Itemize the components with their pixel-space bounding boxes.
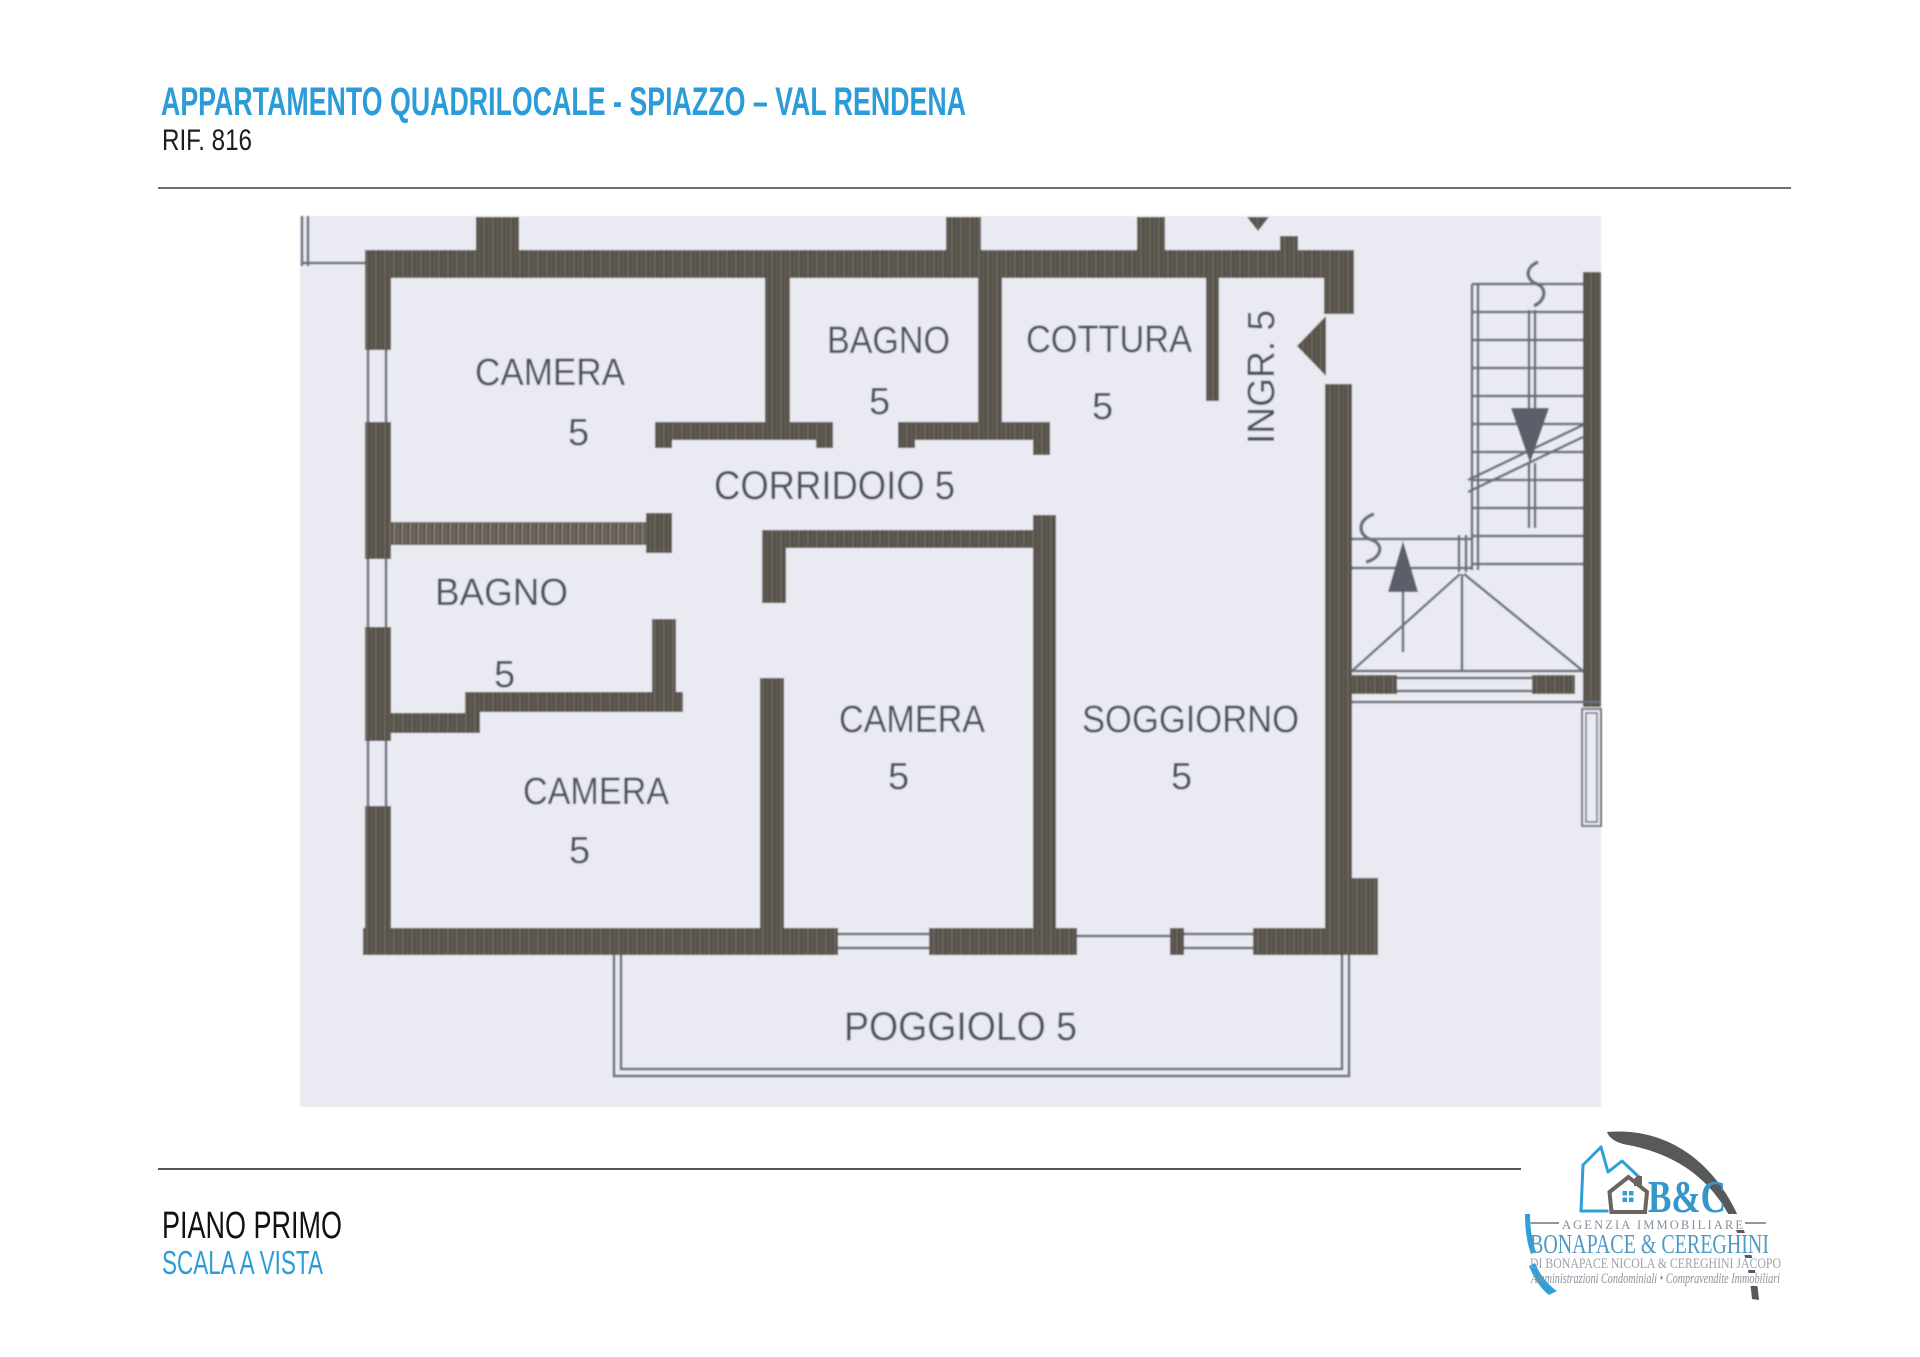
svg-text:5: 5 (888, 756, 909, 798)
svg-text:5: 5 (569, 830, 590, 872)
svg-text:5: 5 (568, 412, 589, 454)
svg-text:BAGNO: BAGNO (435, 572, 568, 614)
svg-text:BONAPACE & CEREGHINI: BONAPACE & CEREGHINI (1530, 1229, 1769, 1259)
svg-text:SOGGIORNO: SOGGIORNO (1082, 699, 1299, 741)
svg-text:POGGIOLO 5: POGGIOLO 5 (844, 1005, 1077, 1049)
svg-text:COTTURA: COTTURA (1026, 319, 1193, 361)
svg-text:CORRIDOIO 5: CORRIDOIO 5 (714, 464, 955, 508)
svg-text:CAMERA: CAMERA (475, 352, 626, 394)
svg-text:5: 5 (869, 381, 890, 423)
svg-text:INGR. 5: INGR. 5 (1241, 310, 1283, 444)
svg-text:DI BONAPACE NICOLA & CEREGHINI: DI BONAPACE NICOLA & CEREGHINI JACOPO (1530, 1256, 1781, 1272)
svg-text:Amministrazioni Condominiali •: Amministrazioni Condominiali • Compraven… (1530, 1271, 1780, 1287)
svg-text:PIANO PRIMO: PIANO PRIMO (162, 1205, 342, 1247)
svg-text:APPARTAMENTO QUADRILOCALE - SP: APPARTAMENTO QUADRILOCALE - SPIAZZO – VA… (161, 80, 966, 124)
svg-text:CAMERA: CAMERA (523, 771, 670, 813)
svg-text:5: 5 (1092, 386, 1113, 428)
svg-text:RIF. 816: RIF. 816 (162, 124, 252, 157)
svg-text:BAGNO: BAGNO (827, 320, 950, 362)
svg-text:SCALA A VISTA: SCALA A VISTA (162, 1244, 323, 1281)
svg-text:CAMERA: CAMERA (839, 699, 986, 741)
svg-text:5: 5 (1171, 756, 1192, 798)
svg-text:B&C: B&C (1648, 1171, 1726, 1222)
svg-text:5: 5 (494, 654, 515, 696)
